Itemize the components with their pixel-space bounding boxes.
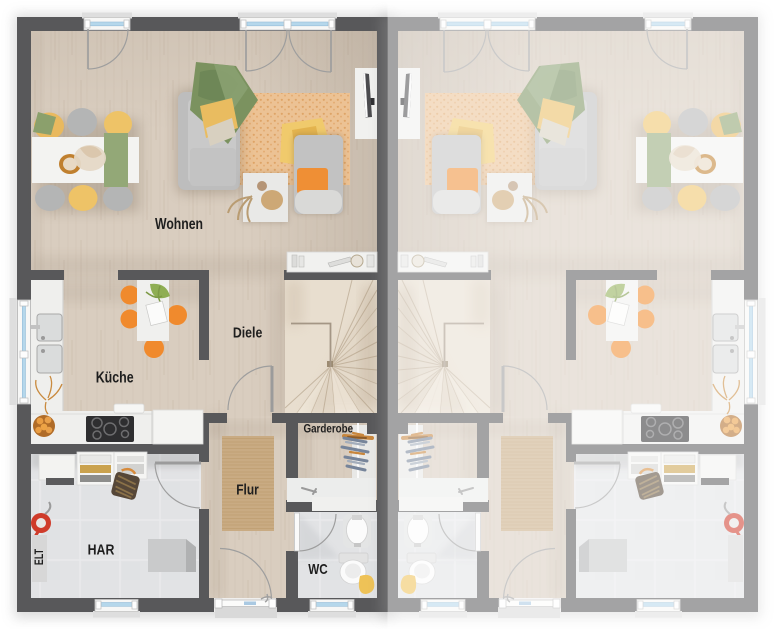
svg-text:Küche: Küche	[96, 369, 134, 386]
svg-text:Flur: Flur	[236, 481, 259, 498]
svg-text:HAR: HAR	[88, 542, 115, 558]
svg-text:ELT: ELT	[34, 549, 46, 565]
svg-text:WC: WC	[308, 561, 328, 578]
svg-text:Diele: Diele	[233, 324, 263, 341]
svg-text:Wohnen: Wohnen	[155, 216, 203, 233]
svg-text:Garderobe: Garderobe	[303, 421, 353, 435]
